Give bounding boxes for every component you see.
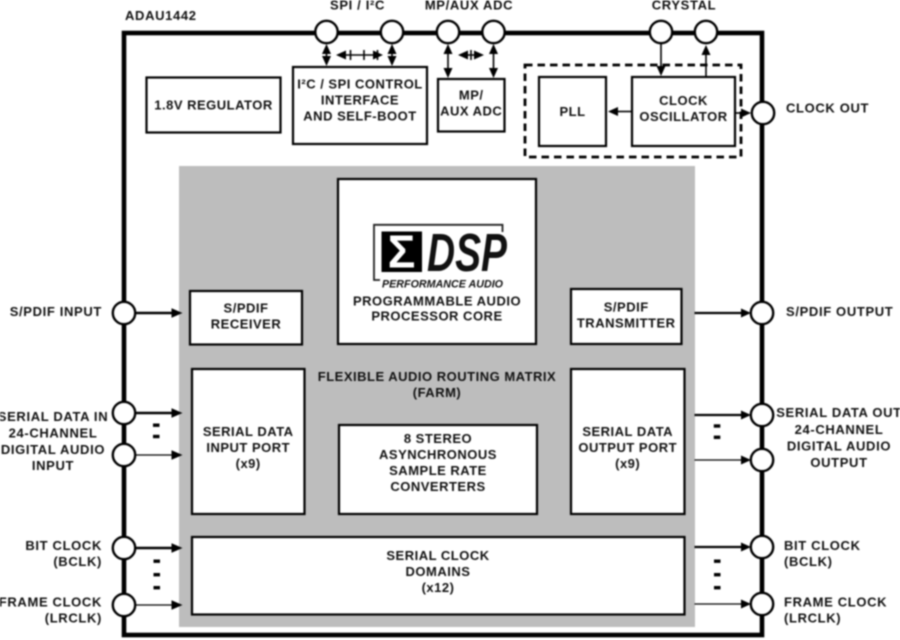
- svg-text:(FARM): (FARM): [413, 385, 462, 400]
- svg-text:DSP: DSP: [427, 223, 508, 283]
- svg-text:8 STEREO: 8 STEREO: [404, 431, 472, 446]
- svg-text:SERIAL DATA OUT: SERIAL DATA OUT: [776, 405, 900, 420]
- svg-text:Σ: Σ: [388, 226, 416, 278]
- svg-text:OUTPUT: OUTPUT: [810, 455, 867, 470]
- svg-text:SERIAL CLOCK: SERIAL CLOCK: [386, 548, 489, 563]
- svg-text:BIT CLOCK: BIT CLOCK: [784, 538, 861, 553]
- svg-text:DOMAINS: DOMAINS: [406, 564, 471, 579]
- svg-text:1.8V REGULATOR: 1.8V REGULATOR: [154, 98, 273, 113]
- svg-text:OSCILLATOR: OSCILLATOR: [639, 109, 727, 124]
- svg-text:CLOCK: CLOCK: [659, 93, 708, 108]
- svg-text:I²C / SPI CONTROL: I²C / SPI CONTROL: [297, 77, 423, 92]
- svg-text:(x12): (x12): [422, 580, 455, 595]
- svg-text:PROCESSOR CORE: PROCESSOR CORE: [371, 309, 502, 324]
- svg-text:TRANSMITTER: TRANSMITTER: [577, 316, 676, 331]
- svg-text:AUX ADC: AUX ADC: [440, 104, 502, 119]
- svg-text:(x9): (x9): [615, 456, 640, 471]
- svg-text:INPUT PORT: INPUT PORT: [206, 440, 290, 455]
- svg-text:FRAME CLOCK: FRAME CLOCK: [784, 595, 887, 610]
- svg-text:CONVERTERS: CONVERTERS: [390, 479, 485, 494]
- svg-text:24-CHANNEL: 24-CHANNEL: [9, 426, 98, 441]
- svg-text:DIGITAL AUDIO: DIGITAL AUDIO: [1, 442, 105, 457]
- svg-text:SPI / I²C: SPI / I²C: [330, 0, 385, 13]
- svg-text:PLL: PLL: [559, 104, 585, 119]
- svg-text:MP/: MP/: [459, 88, 484, 103]
- svg-text:(LRCLK): (LRCLK): [45, 611, 102, 626]
- svg-text:ASYNCHRONOUS: ASYNCHRONOUS: [379, 447, 497, 462]
- svg-text:PERFORMANCE AUDIO: PERFORMANCE AUDIO: [382, 279, 503, 291]
- svg-text:BIT CLOCK: BIT CLOCK: [25, 538, 102, 553]
- svg-text:DIGITAL AUDIO: DIGITAL AUDIO: [787, 439, 891, 454]
- svg-text:(BCLK): (BCLK): [53, 554, 102, 569]
- svg-text:SERIAL DATA: SERIAL DATA: [203, 424, 294, 439]
- svg-text:FRAME CLOCK: FRAME CLOCK: [0, 595, 102, 610]
- svg-text:24-CHANNEL: 24-CHANNEL: [795, 422, 884, 437]
- svg-text:S/PDIF: S/PDIF: [604, 300, 649, 315]
- svg-text:CRYSTAL: CRYSTAL: [652, 0, 717, 13]
- svg-text:INTERFACE: INTERFACE: [321, 93, 399, 108]
- svg-text:S/PDIF OUTPUT: S/PDIF OUTPUT: [786, 304, 893, 319]
- svg-text:AND SELF-BOOT: AND SELF-BOOT: [303, 109, 416, 124]
- svg-text:INPUT: INPUT: [32, 458, 74, 473]
- svg-text:FLEXIBLE AUDIO ROUTING MATRIX: FLEXIBLE AUDIO ROUTING MATRIX: [318, 369, 556, 384]
- svg-text:ADAU1442: ADAU1442: [125, 8, 197, 23]
- svg-text:S/PDIF: S/PDIF: [224, 301, 269, 316]
- svg-text:(LRCLK): (LRCLK): [784, 611, 841, 626]
- svg-text:CLOCK OUT: CLOCK OUT: [786, 101, 869, 116]
- svg-text:S/PDIF INPUT: S/PDIF INPUT: [10, 304, 102, 319]
- svg-text:RECEIVER: RECEIVER: [211, 317, 282, 332]
- svg-text:PROGRAMMABLE AUDIO: PROGRAMMABLE AUDIO: [353, 294, 521, 309]
- svg-text:SAMPLE RATE: SAMPLE RATE: [389, 463, 487, 478]
- svg-text:MP/AUX ADC: MP/AUX ADC: [425, 0, 513, 13]
- svg-text:(x9): (x9): [236, 456, 261, 471]
- svg-text:SERIAL DATA: SERIAL DATA: [582, 424, 673, 439]
- svg-text:OUTPUT PORT: OUTPUT PORT: [578, 440, 677, 455]
- svg-text:SERIAL DATA IN: SERIAL DATA IN: [0, 409, 108, 424]
- svg-text:(BCLK): (BCLK): [784, 554, 833, 569]
